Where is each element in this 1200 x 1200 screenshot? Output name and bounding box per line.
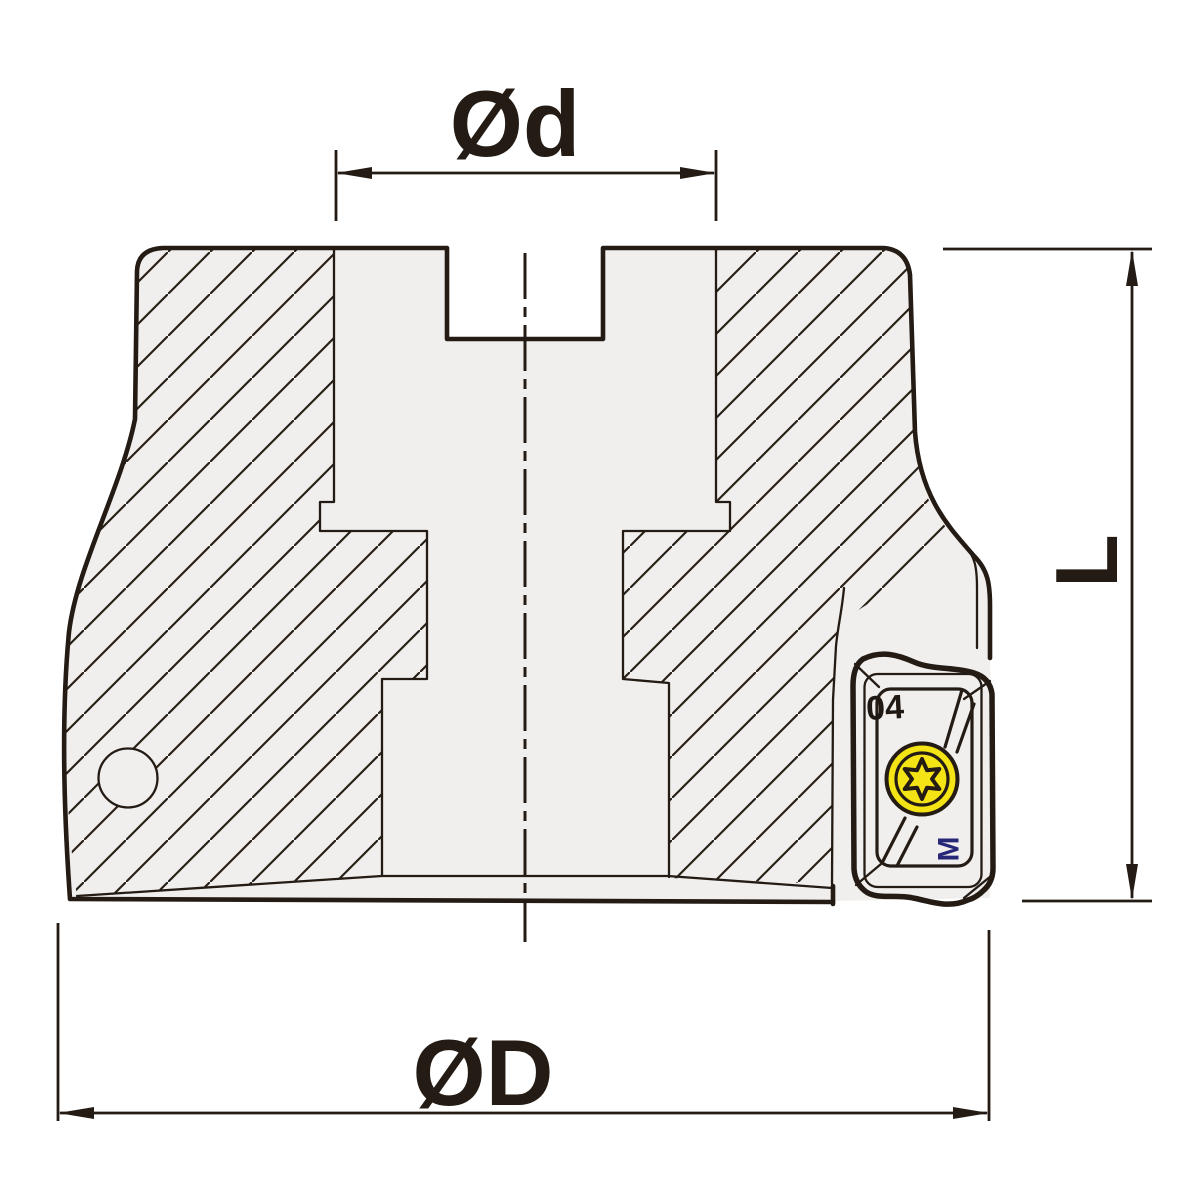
arrowhead-left — [58, 1107, 94, 1119]
torx-screw — [887, 744, 958, 815]
arrowhead-left — [336, 167, 372, 179]
arrowhead-right — [953, 1107, 989, 1119]
insert-marking-size: 04 — [865, 688, 905, 728]
arrowhead-right — [680, 167, 716, 179]
dimension-outer-diameter: ØD — [58, 923, 989, 1125]
insert-marking-grade: M — [933, 837, 966, 862]
body-hole — [99, 749, 158, 808]
outer-diameter-label: ØD — [413, 1020, 554, 1125]
technical-drawing: 04 M Ød ØD L — [0, 0, 1200, 1200]
arrowhead-bottom — [1126, 864, 1138, 900]
arrowhead-top — [1126, 250, 1138, 286]
bore-diameter-label: Ød — [450, 71, 581, 176]
height-label: L — [1037, 534, 1136, 588]
drawing-canvas: 04 M Ød ØD L — [0, 0, 1200, 1200]
dimension-bore-diameter: Ød — [336, 71, 716, 221]
